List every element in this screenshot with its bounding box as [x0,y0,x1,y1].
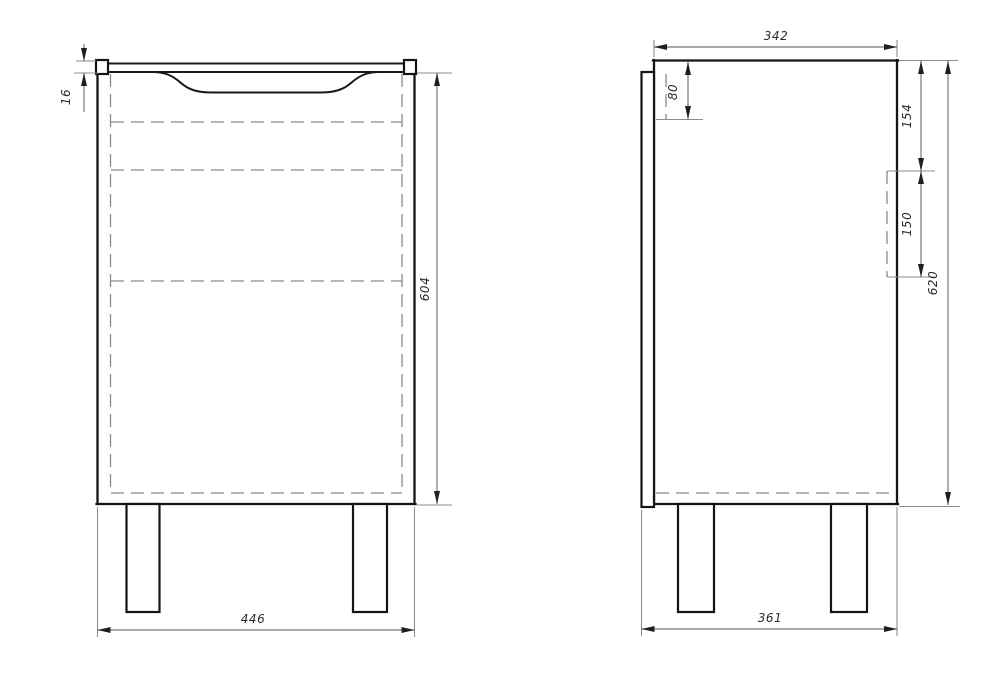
dim-label-361: 361 [758,611,782,625]
dim-label-620: 620 [926,271,940,295]
front-leg-right [353,504,387,612]
dim-cutout-height: 150 [887,171,935,277]
front-hidden-lines [111,74,403,493]
front-view: 446 604 16 [59,44,452,637]
dim-label-150: 150 [900,212,914,236]
dim-label-80: 80 [666,84,680,100]
side-outline [642,60,899,507]
drawing-sheet: 446 604 16 [0,0,1000,694]
front-right-tab [404,60,416,74]
side-view: 342 80 154 150 620 [642,29,961,636]
dim-cutout-offset: 154 [900,61,921,171]
side-hidden-lines [656,74,895,493]
dim-label-154: 154 [900,104,914,128]
dim-label-342: 342 [764,29,788,43]
dim-label-446: 446 [241,612,265,626]
front-door-handle-curve [153,72,379,93]
front-outline [96,60,416,504]
side-leg-left [678,504,714,612]
dim-label-16: 16 [59,89,73,105]
dim-handle-groove: 80 [656,62,703,120]
side-door-panel [642,72,655,507]
dim-side-depth: 342 [654,29,897,57]
front-leg-left [127,504,160,612]
front-left-tab [96,60,108,74]
dim-top-thickness: 16 [59,44,98,112]
technical-drawing: 446 604 16 [0,0,1000,694]
dim-front-height: 604 [417,73,452,505]
dim-label-604: 604 [418,277,432,301]
side-leg-right [831,504,867,612]
